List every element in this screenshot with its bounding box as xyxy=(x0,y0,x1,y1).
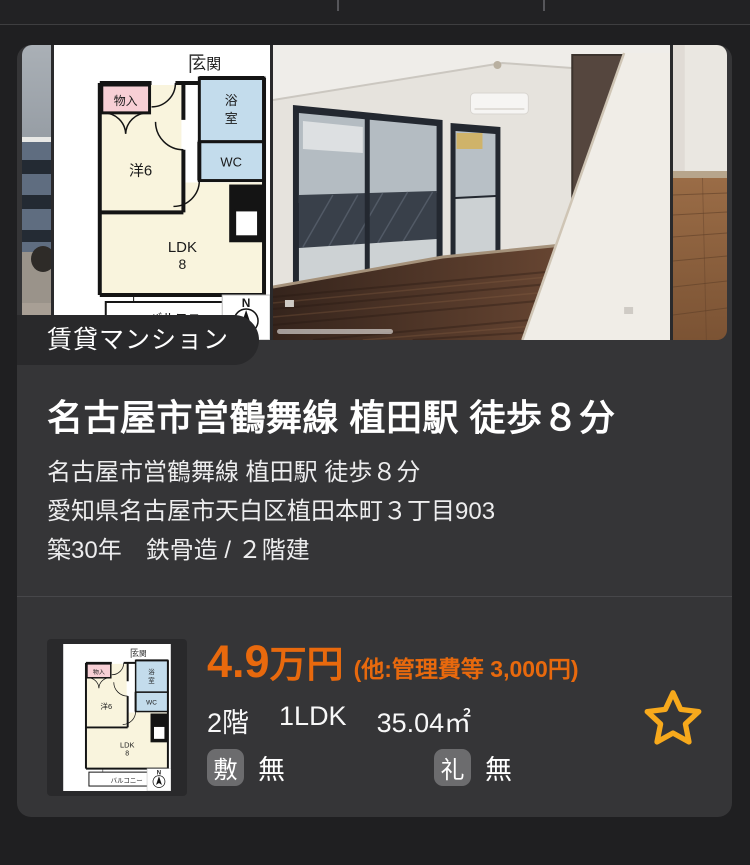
unit-info: 4.9 万円 (他:管理費等 3,000円) 2階 1LDK 35.04㎡ 敷 … xyxy=(207,639,642,787)
key-money-group: 礼 無 xyxy=(434,748,512,787)
tab-divider xyxy=(337,0,339,11)
listing-info: 名古屋市営鶴舞線 植田駅 徒歩８分 名古屋市営鶴舞線 植田駅 徒歩８分 愛知県名… xyxy=(17,396,732,570)
tab-divider xyxy=(543,0,545,11)
top-tab-bar[interactable] xyxy=(0,0,750,25)
spec-area: 35.04㎡ xyxy=(377,701,472,740)
photo-floorplan[interactable] xyxy=(54,45,270,340)
key-money-badge: 礼 xyxy=(434,749,471,786)
star-outline-icon xyxy=(642,687,704,749)
spec-layout: 1LDK xyxy=(279,701,347,740)
gallery-scroll-indicator[interactable] xyxy=(277,329,393,334)
favorite-star-button[interactable] xyxy=(642,687,704,749)
price-line: 4.9 万円 (他:管理費等 3,000円) xyxy=(207,639,642,692)
floorplan-thumbnail[interactable] xyxy=(47,639,187,796)
price-amount: 4.9 xyxy=(207,639,270,685)
price-extra-fees: (他:管理費等 3,000円) xyxy=(354,646,579,692)
listing-title: 名古屋市営鶴舞線 植田駅 徒歩８分 xyxy=(47,396,702,440)
photo-exterior[interactable] xyxy=(22,45,51,340)
key-money-value: 無 xyxy=(485,748,512,787)
fees-row: 敷 無 礼 無 xyxy=(207,748,642,787)
listing-card[interactable]: 賃貸マンション 名古屋市営鶴舞線 植田駅 徒歩８分 名古屋市営鶴舞線 植田駅 徒… xyxy=(17,45,732,817)
listing-details: 名古屋市営鶴舞線 植田駅 徒歩８分 愛知県名古屋市天白区植田本町３丁目903 築… xyxy=(47,453,702,570)
deposit-value: 無 xyxy=(258,748,285,787)
property-type-label: 賃貸マンション xyxy=(47,326,229,354)
price-unit: 万円 xyxy=(270,642,344,688)
deposit-badge: 敷 xyxy=(207,749,244,786)
detail-building: 築30年 鉄骨造 / ２階建 xyxy=(47,531,702,570)
spec-floor: 2階 xyxy=(207,701,249,740)
photo-gallery[interactable] xyxy=(22,45,727,340)
deposit-group: 敷 無 xyxy=(207,748,434,787)
unit-specs: 2階 1LDK 35.04㎡ xyxy=(207,701,642,740)
detail-access: 名古屋市営鶴舞線 植田駅 徒歩８分 xyxy=(47,453,702,492)
detail-address: 愛知県名古屋市天白区植田本町３丁目903 xyxy=(47,492,702,531)
property-type-badge: 賃貸マンション xyxy=(17,315,259,365)
photo-interior-2[interactable] xyxy=(673,45,727,340)
unit-summary-row[interactable]: 4.9 万円 (他:管理費等 3,000円) 2階 1LDK 35.04㎡ 敷 … xyxy=(17,597,732,796)
photo-interior-main[interactable] xyxy=(273,45,670,340)
